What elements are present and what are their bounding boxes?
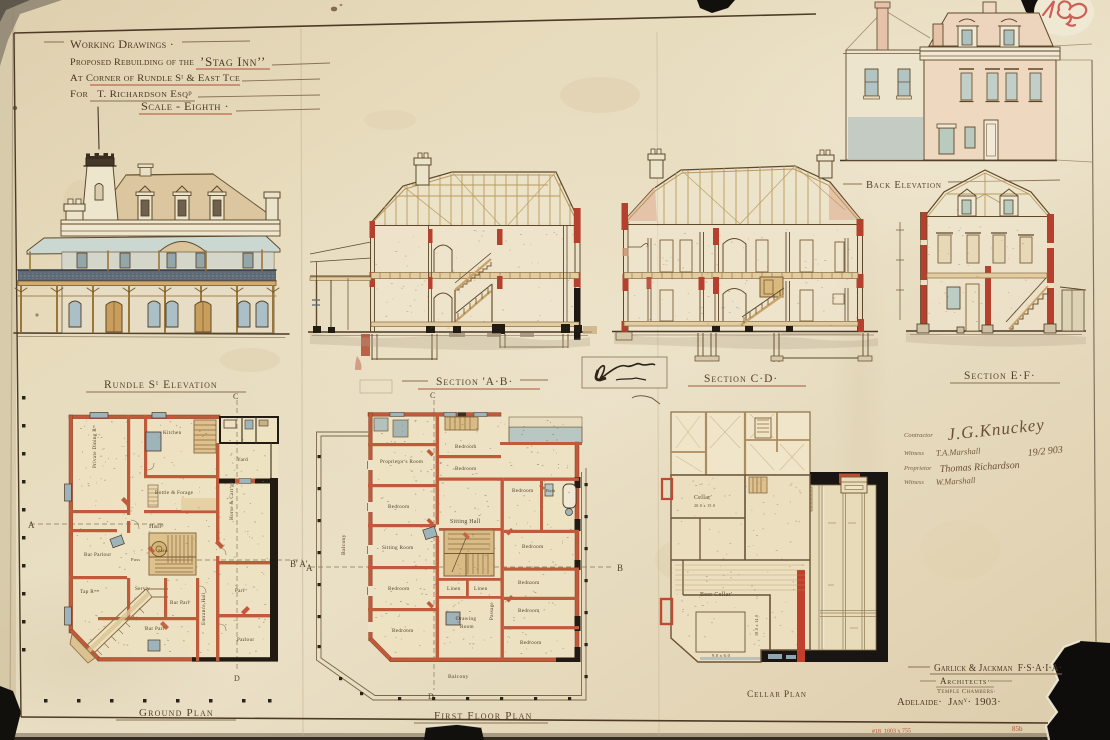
svg-text:Bottle & Forage: Bottle & Forage [155,490,194,496]
svg-text:Linen: Linen [474,586,488,592]
svg-text:B: B [617,563,623,573]
svg-text:Witness: Witness [904,450,924,457]
svg-text:Drawing: Drawing [456,616,476,622]
svg-text:Bedroom: Bedroom [520,640,541,646]
svg-text:Parlᵗᵗ: Parlᵗᵗ [235,588,247,594]
svg-text:Hallᵖ: Hallᵖ [149,523,164,530]
svg-text:Architects·: Architects· [940,676,991,686]
svg-text:Proposed Rebuilding of the: Proposed Rebuilding of the [70,58,194,68]
svg-text:Bar Parlᵗ: Bar Parlᵗ [145,626,166,632]
svg-text:Ground Plan: Ground Plan [139,707,214,719]
svg-text:C: C [430,391,435,400]
svg-text:D: D [428,692,434,701]
svg-text:Bedroom: Bedroom [518,608,539,614]
svg-text:Cellarʹ: Cellarʹ [694,494,712,501]
svg-text:Bedroom: Bedroom [522,544,543,550]
svg-text:Entrance Hall: Entrance Hall [201,592,207,625]
svg-text:9.0 x 6.0: 9.0 x 6.0 [712,653,731,658]
svg-text:18.0 x 14.0: 18.0 x 14.0 [754,615,759,636]
svg-text:Room: Room [460,624,474,630]
svg-text:Proprietorʹs Room: Proprietorʹs Room [380,458,423,465]
svg-text:First Floor Plan: First Floor Plan [434,710,533,722]
svg-text:Contractor: Contractor [904,432,933,439]
svg-text:#18 1003 x 755: #18 1003 x 755 [872,728,911,735]
svg-text:Balcony: Balcony [341,534,347,555]
svg-text:Linen: Linen [447,586,461,592]
svg-text:Bar Parlour: Bar Parlour [84,552,111,558]
svg-text:Temple Chambers·: Temple Chambers· [937,688,996,695]
svg-text:Servʹy: Servʹy [135,585,150,592]
svg-text:Proprietor: Proprietor [903,465,932,472]
svg-text:’Stag Inn’’: ’Stag Inn’’ [200,55,266,69]
svg-text:Bar Parlᵗ: Bar Parlᵗ [170,600,191,606]
svg-text:At Corner of Rundle Sᵗ & East: At Corner of Rundle Sᵗ & East Tce [70,74,240,84]
svg-text:A: A [306,563,313,573]
svg-text:Pass: Pass [131,557,140,562]
svg-text:Back Elevation: Back Elevation [866,180,942,191]
svg-text:Working Drawings ·: Working Drawings · [70,37,174,51]
svg-text:C: C [233,392,238,401]
svg-text:D: D [234,674,240,683]
svg-text:Section C·D·: Section C·D· [704,373,778,385]
svg-text:Bedroom: Bedroom [392,628,413,634]
svg-text:A: A [28,520,35,530]
svg-text:Balcony: Balcony [448,674,469,680]
svg-text:Horse & Carrʹge: Horse & Carrʹge [228,481,235,520]
svg-text:Bath: Bath [546,488,556,493]
svg-text:Section E·F·: Section E·F· [964,370,1036,382]
svg-text:Sitting Room: Sitting Room [382,545,413,551]
svg-text:Garlick & Jackman F·S·A·I·A·: Garlick & Jackman F·S·A·I·A· [934,663,1062,674]
svg-text:Scale - Eighth ·: Scale - Eighth · [141,101,229,113]
svg-text:Tap Rᵐᵐ: Tap Rᵐᵐ [80,589,100,595]
svg-text:Bedroom: Bedroom [455,466,476,472]
svg-text:Yard: Yard [237,457,248,463]
svg-text:Beer Cellarʹ: Beer Cellarʹ [700,591,733,598]
svg-text:Passage: Passage [490,602,495,620]
svg-text:20.0 x 15.0: 20.0 x 15.0 [694,503,715,508]
svg-text:Stair: Stair [158,548,168,553]
svg-text:Cellar Plan: Cellar Plan [747,690,807,700]
svg-text:Sitting Hall: Sitting Hall [450,519,481,525]
svg-text:Adelaide· Jany· 1903·: Adelaide· Jany· 1903· [897,696,1001,708]
svg-text:Bedroom: Bedroom [518,580,539,586]
svg-text:Section 'A·B·: Section 'A·B· [436,376,513,388]
svg-text:Kitchen: Kitchen [163,430,182,436]
svg-text:Bedroom: Bedroom [512,488,533,494]
svg-text:Witness: Witness [904,479,924,486]
svg-text:85b: 85b [1012,725,1023,733]
svg-text:For T. Richardson Esqᵖ: For T. Richardson Esqᵖ [70,90,192,100]
svg-text:Rundle Sᵗ Elevation: Rundle Sᵗ Elevation [104,379,218,391]
svg-text:Parlour: Parlour [237,637,254,643]
svg-text:Private Dining Rᵐ: Private Dining Rᵐ [92,425,98,468]
svg-text:Bedroom: Bedroom [388,504,409,510]
svg-text:Bedroom: Bedroom [455,444,476,450]
svg-text:W.Marshall: W.Marshall [936,475,977,487]
